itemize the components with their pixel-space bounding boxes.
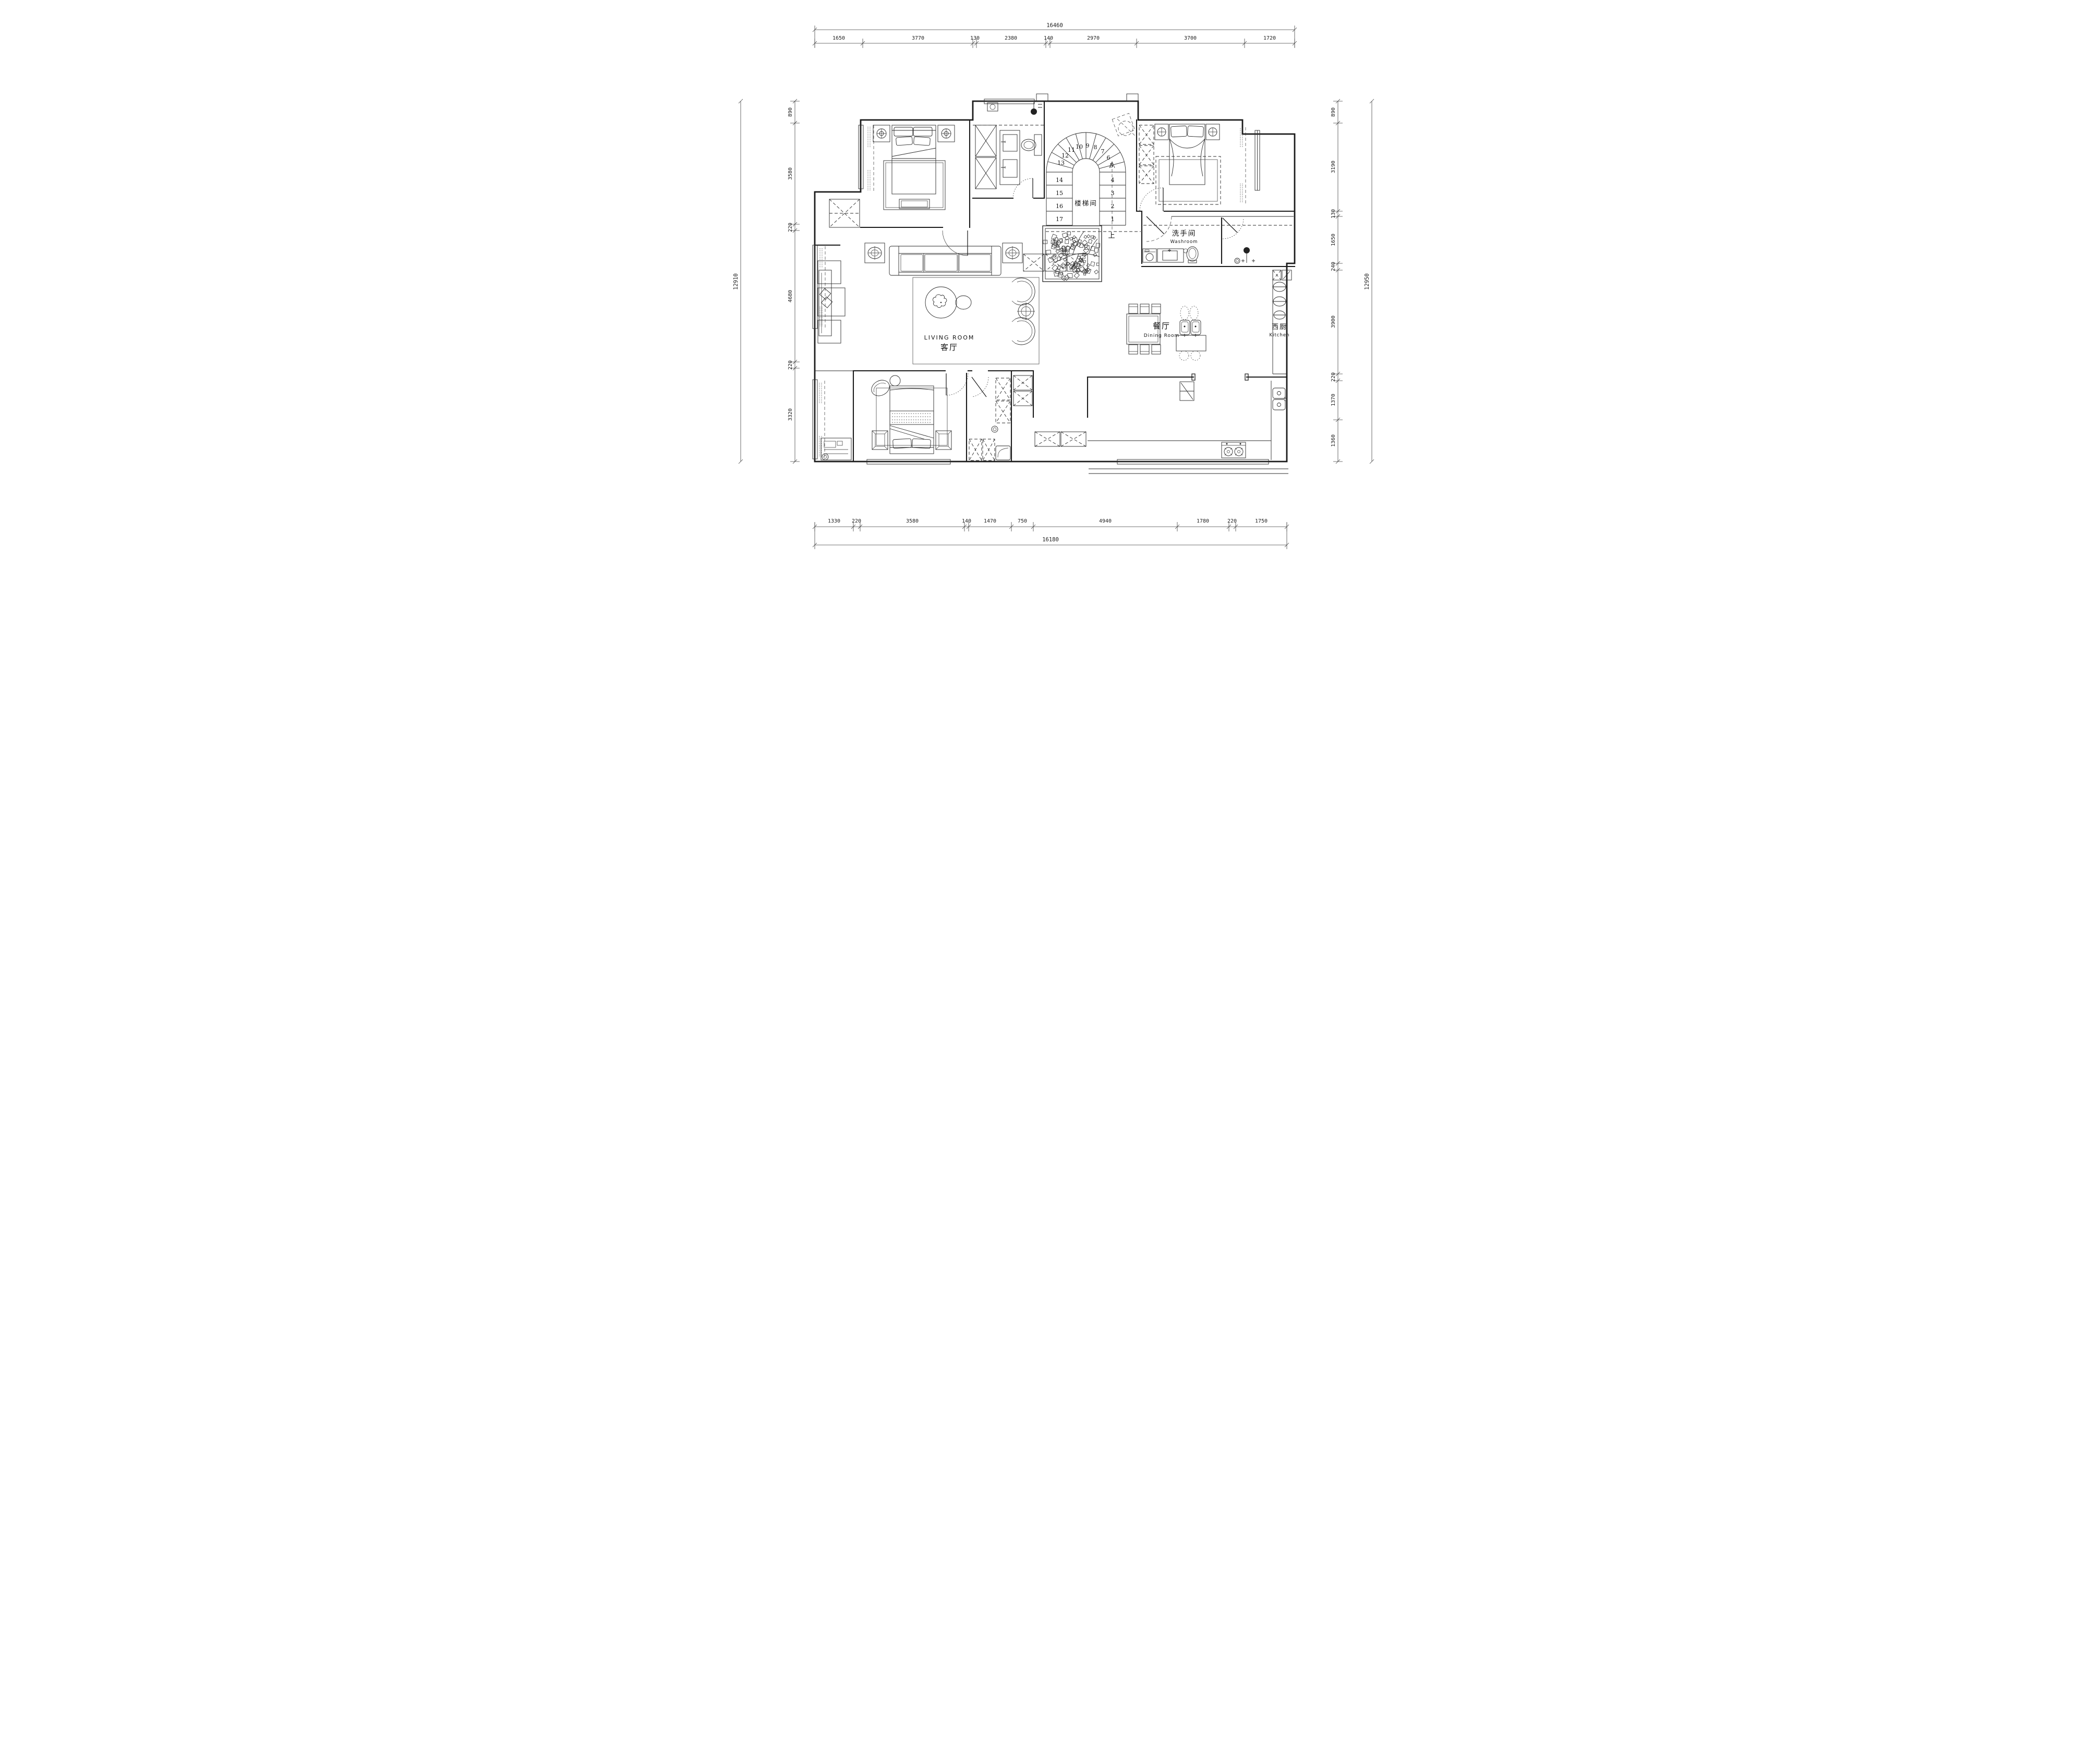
cabinet-icon	[829, 199, 860, 227]
dim-total-left: 12910	[733, 273, 739, 290]
dim-label: 1650	[832, 35, 845, 41]
bedroom-bottom-left	[869, 375, 951, 454]
counter-edge	[1088, 381, 1271, 460]
coffee-table-symbol	[925, 287, 971, 318]
stair-step-number: 15	[1056, 190, 1063, 197]
stair-step-number: 8	[1094, 144, 1097, 151]
ottoman-symbol	[818, 261, 841, 284]
stairwell-label: 楼梯间	[1075, 199, 1097, 207]
dim-label: 3190	[1331, 161, 1336, 173]
armchair-symbol	[1012, 278, 1035, 305]
side-table-plant-icon	[865, 243, 885, 263]
dimension-labels-bottom: 16180 1330 220 3580 140 1470 750 4940 17…	[828, 518, 1268, 543]
cabinet-icon	[1035, 432, 1086, 446]
island-counter-symbol	[1176, 306, 1206, 360]
dim-label: 2380	[1005, 35, 1017, 41]
hall-cabinets	[1013, 375, 1086, 446]
cabinet-icon	[1013, 375, 1032, 406]
ottoman-symbol	[818, 320, 841, 343]
stair-step-number: 9	[1086, 142, 1090, 149]
stair-step-number: 4	[1111, 177, 1115, 184]
dim-label: 750	[1018, 518, 1027, 524]
dim-label: 3770	[912, 35, 924, 41]
dim-total-bottom: 16180	[1042, 537, 1059, 543]
dim-total-top: 16460	[1046, 22, 1063, 29]
stair-step-number: 11	[1068, 147, 1075, 153]
dim-label: 1470	[984, 518, 996, 524]
dim-label: 140	[1044, 35, 1053, 41]
tree-symbol	[1043, 232, 1100, 281]
bathtub-symbol	[996, 446, 1010, 460]
bedroom-top-left	[873, 125, 955, 210]
side-table-plant-icon	[1003, 243, 1022, 263]
dim-label: 130	[970, 35, 980, 41]
cabinet-icon	[996, 378, 1010, 423]
sink-symbol	[1163, 251, 1177, 260]
stove-symbol	[1222, 442, 1246, 458]
nightstand-symbol	[872, 431, 888, 450]
wardrobe-icon	[975, 125, 996, 189]
bed-symbol	[890, 386, 934, 454]
windows	[813, 99, 1269, 464]
exterior-walls	[815, 94, 1295, 474]
dim-label: 3320	[788, 408, 793, 421]
bathroom-bottom	[969, 378, 1010, 460]
dimension-labels-right: 12950 890 3190 130 1650 240 3900 220 137…	[1331, 107, 1370, 447]
dim-label: 890	[788, 107, 793, 117]
dimension-labels-top: 16460 1650 3770 130 2380 140 2970 3700 1…	[832, 22, 1276, 41]
stair-step-number: 16	[1056, 203, 1063, 210]
wardrobe-icon	[1139, 125, 1154, 184]
floor-drain-icon	[992, 426, 998, 432]
stair-step-number: 10	[1076, 143, 1083, 150]
armchair-symbol	[869, 375, 900, 399]
sofa-symbol	[889, 246, 1001, 275]
up-label: 上	[1108, 232, 1116, 240]
toilet-symbol	[1184, 247, 1198, 263]
dim-label: 220	[1331, 372, 1336, 382]
stair-step-number: 1	[1111, 216, 1115, 223]
kitchen-label-zh: 西厨	[1272, 323, 1287, 331]
shower-head-icon	[1031, 102, 1042, 115]
dim-label: 3580	[788, 167, 793, 180]
dining-room: 餐厅 Dining Room	[1127, 304, 1206, 360]
stair-step-number: 17	[1056, 216, 1063, 223]
living-room-label-zh: 客厅	[940, 343, 958, 352]
bathroom-top-middle	[975, 102, 1042, 189]
cooktop-burner-icon	[1273, 282, 1286, 319]
kitchen-sink-symbol	[1273, 388, 1287, 410]
bed-symbol	[892, 125, 936, 194]
dim-label: 1330	[828, 518, 840, 524]
dim-label: 220	[852, 518, 861, 524]
stair-step-number: 2	[1111, 203, 1115, 210]
stair-step-number: 14	[1056, 177, 1063, 184]
bedroom-top-right	[1139, 124, 1221, 204]
staircase-symbol: 1 2 3 4 5 6 7 8 9 10 11 12 13 14 15 16 1…	[1046, 113, 1136, 240]
dim-label: 220	[788, 223, 793, 232]
dim-label: 4940	[1099, 518, 1112, 524]
stair-step-number: 6	[1107, 154, 1111, 161]
stair-step-number: 5	[1110, 162, 1114, 169]
dimension-labels-left: 12910 890 3580 220 4680 220 3320	[733, 107, 793, 421]
cabinet-icon	[1273, 270, 1292, 280]
stair-step-number: 3	[1111, 190, 1115, 197]
nightstand-symbol	[936, 431, 951, 450]
wardrobe-strip-bottom-left	[821, 438, 851, 460]
stair-step-number: 12	[1061, 152, 1069, 159]
dim-label: 1370	[1331, 394, 1336, 406]
floor-plan-page: 16460 1650 3770 130 2380 140 2970 3700 1…	[700, 0, 1400, 586]
dim-label: 1650	[1331, 234, 1336, 246]
dining-label-zh: 餐厅	[1153, 321, 1170, 331]
dim-label: 130	[1331, 209, 1336, 219]
dining-label-en: Dining Room	[1144, 333, 1180, 338]
dim-label: 890	[1331, 107, 1336, 117]
west-kitchen-strip: 西厨 Kitchen	[1270, 270, 1292, 374]
armchair-symbol	[1012, 318, 1035, 345]
dim-label: 1720	[1263, 35, 1276, 41]
dim-label: 1780	[1197, 518, 1209, 524]
dim-label: 3700	[1184, 35, 1197, 41]
dim-label: 3580	[906, 518, 919, 524]
dimension-lines	[739, 26, 1374, 549]
fridge-symbol	[1180, 382, 1194, 401]
washroom-label-en: Washroom	[1170, 239, 1198, 245]
floor-plan-drawing: 16460 1650 3770 130 2380 140 2970 3700 1…	[700, 0, 1400, 586]
kitchen-bottom	[1088, 381, 1287, 460]
cabinet-icon	[969, 439, 995, 460]
dim-label: 3900	[1331, 316, 1336, 328]
dim-label: 220	[788, 360, 793, 370]
dim-label: 240	[1331, 262, 1336, 271]
toilet-symbol	[1021, 135, 1042, 155]
shower-head-icon	[1235, 247, 1255, 263]
dim-label: 1750	[1255, 518, 1268, 524]
courtyard-planter	[1043, 226, 1102, 282]
dim-label: 2970	[1087, 35, 1100, 41]
dim-label: 140	[962, 518, 971, 524]
dim-label: 220	[1227, 518, 1237, 524]
bed-symbol	[1169, 124, 1205, 185]
rug-symbol	[1156, 156, 1221, 204]
washing-machine-icon	[1143, 249, 1156, 262]
washroom-label-zh: 洗手间	[1172, 229, 1197, 238]
kitchen-label-en: Kitchen	[1270, 333, 1290, 338]
stair-step-number: 7	[1101, 148, 1105, 155]
dim-label: 1360	[1331, 434, 1336, 447]
dim-total-right: 12950	[1364, 273, 1370, 290]
dim-label: 4680	[788, 290, 793, 302]
washroom: 洗手间 Washroom	[1143, 229, 1255, 263]
cabinet-icon	[821, 438, 851, 460]
tv-cabinet-symbol	[819, 270, 832, 336]
stair-step-number: 13	[1057, 160, 1065, 166]
living-room-label-en: LIVING ROOM	[924, 334, 975, 341]
